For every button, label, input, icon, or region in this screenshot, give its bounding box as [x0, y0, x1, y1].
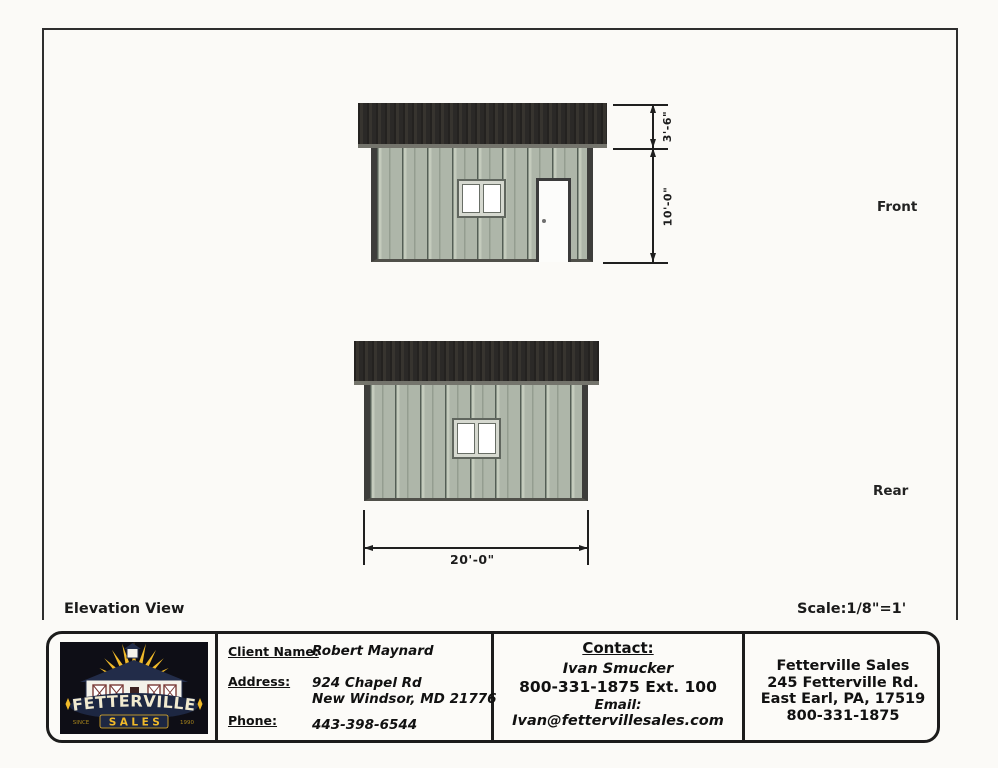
contact-email: Ivan@fettervillesales.com: [494, 713, 742, 729]
rear-view-label: Rear: [873, 483, 908, 499]
door-knob: [542, 219, 546, 223]
drawing-page: 3'-6" 10'-0" Front 20'-0" Rear Elevation…: [0, 0, 998, 768]
extension-line: [363, 510, 365, 565]
title-block-divider: [215, 634, 218, 740]
front-door: [536, 178, 571, 262]
fetterville-logo-art: FETTERVILLE SINCE 1990 SALES: [60, 642, 208, 734]
dimension-line-horizontal: [364, 547, 588, 549]
dim-wall-height: 10'-0": [655, 186, 681, 226]
contact-phone: 800-331-1875 Ext. 100: [494, 678, 742, 696]
client-address-line1: 924 Chapel Rd: [312, 675, 422, 691]
company-section: Fetterville Sales 245 Fetterville Rd. Ea…: [745, 658, 941, 724]
extension-line: [603, 262, 668, 264]
client-name-value: Robert Maynard: [312, 643, 434, 659]
dimension-arrow: [364, 545, 373, 551]
contact-email-label: Email:: [494, 697, 742, 713]
rear-window: [452, 418, 501, 459]
dim-width: 20'-0": [450, 552, 495, 567]
contact-section: Contact: Ivan Smucker 800-331-1875 Ext. …: [494, 639, 742, 729]
company-address-line1: 245 Fetterville Rd.: [745, 675, 941, 692]
sheet-title: Elevation View: [64, 601, 184, 617]
contact-heading: Contact:: [494, 639, 742, 657]
dimension-arrow: [650, 253, 656, 262]
rear-roof: [354, 341, 599, 385]
client-name-label: Client Name:: [228, 644, 319, 659]
window-pane: [483, 184, 501, 213]
logo-year-text: 1990: [180, 720, 194, 726]
scale-note: Scale:1/8"=1': [797, 601, 906, 617]
company-address-line2: East Earl, PA, 17519: [745, 691, 941, 708]
logo-sub-text: SALES: [109, 717, 164, 729]
dimension-line-vertical: [652, 104, 654, 262]
extension-line: [613, 148, 668, 150]
fetterville-logo: FETTERVILLE SINCE 1990 SALES: [60, 642, 208, 734]
contact-name: Ivan Smucker: [494, 661, 742, 677]
window-pane: [462, 184, 480, 213]
company-name: Fetterville Sales: [745, 658, 941, 675]
window-pane: [457, 423, 475, 454]
extension-line: [587, 510, 589, 565]
client-address-label: Address:: [228, 674, 290, 689]
company-phone: 800-331-1875: [745, 708, 941, 725]
window-pane: [478, 423, 496, 454]
front-window: [457, 179, 506, 218]
front-roof: [358, 103, 607, 148]
extension-line: [613, 104, 668, 106]
client-phone-value: 443-398-6544: [312, 717, 417, 733]
client-address-line2: New Windsor, MD 21776: [312, 691, 497, 707]
logo-since-text: SINCE: [73, 720, 90, 726]
dim-roof-height: 3'-6": [655, 110, 681, 142]
client-phone-label: Phone:: [228, 713, 277, 728]
dimension-arrow: [579, 545, 588, 551]
front-view-label: Front: [877, 199, 917, 215]
dimension-arrow: [650, 148, 656, 157]
